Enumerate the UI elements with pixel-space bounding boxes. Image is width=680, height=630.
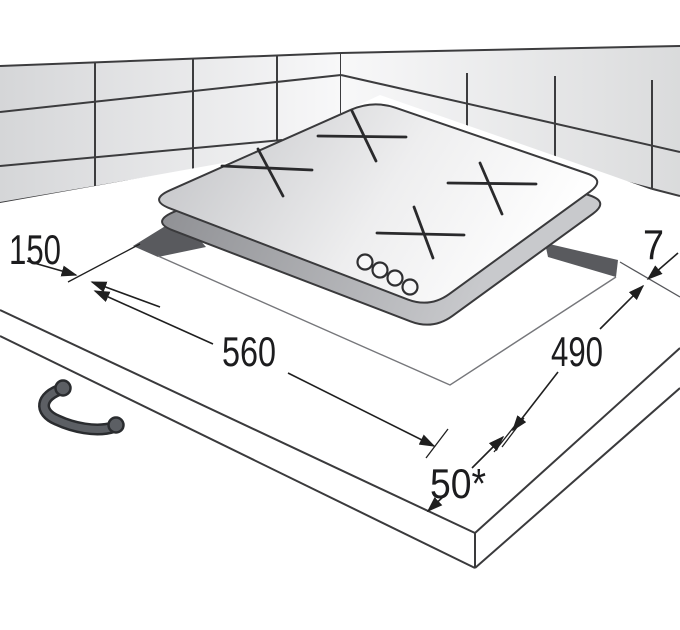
dim-label-cutout-width: 560 [222,328,276,375]
knob-3 [388,271,403,286]
knob-1 [358,255,373,270]
diagram-canvas: 150 560 490 50* 7 [0,0,680,630]
handle-foot-right [109,418,124,433]
handle-foot-left [56,381,71,396]
knob-2 [373,263,388,278]
dim-label-wall-side-clearance: 150 [9,226,61,273]
installation-diagram: 150 560 490 50* 7 [0,0,680,630]
dim-label-cutout-depth: 490 [551,328,603,375]
dim-label-right-clearance: 7 [643,221,664,268]
knob-4 [403,280,418,295]
dim-label-front-clearance: 50* [430,460,486,507]
